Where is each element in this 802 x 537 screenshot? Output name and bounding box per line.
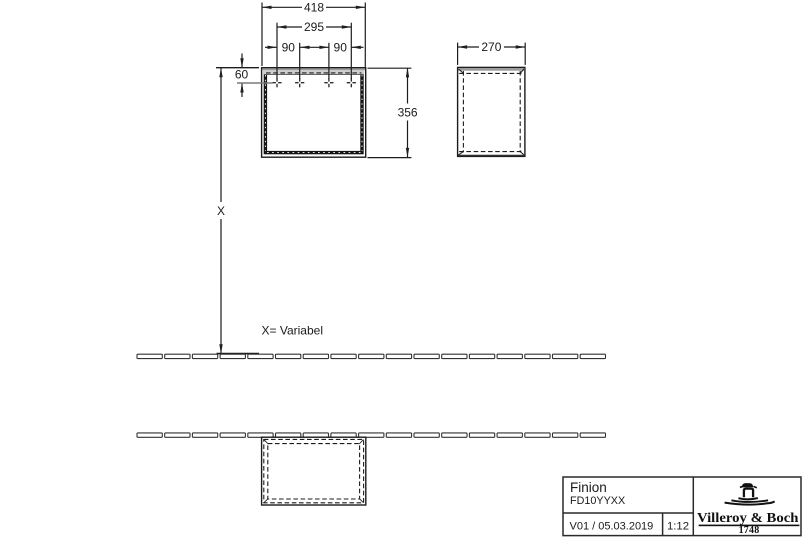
svg-text:X: X	[217, 204, 225, 218]
svg-text:270: 270	[481, 40, 501, 54]
svg-text:418: 418	[304, 1, 324, 15]
svg-text:1:12: 1:12	[667, 521, 689, 533]
svg-text:1748: 1748	[739, 525, 760, 536]
svg-text:90: 90	[282, 41, 296, 55]
svg-text:Finion: Finion	[570, 480, 607, 495]
svg-text:60: 60	[235, 68, 249, 82]
svg-text:Villeroy & Boch: Villeroy & Boch	[697, 510, 799, 525]
svg-text:V01 / 05.03.2019: V01 / 05.03.2019	[570, 521, 654, 533]
svg-text:356: 356	[398, 105, 418, 119]
svg-text:FD10YYXX: FD10YYXX	[570, 495, 625, 507]
svg-text:90: 90	[334, 41, 348, 55]
svg-text:X= Variabel: X= Variabel	[262, 323, 323, 337]
svg-text:295: 295	[304, 20, 324, 34]
